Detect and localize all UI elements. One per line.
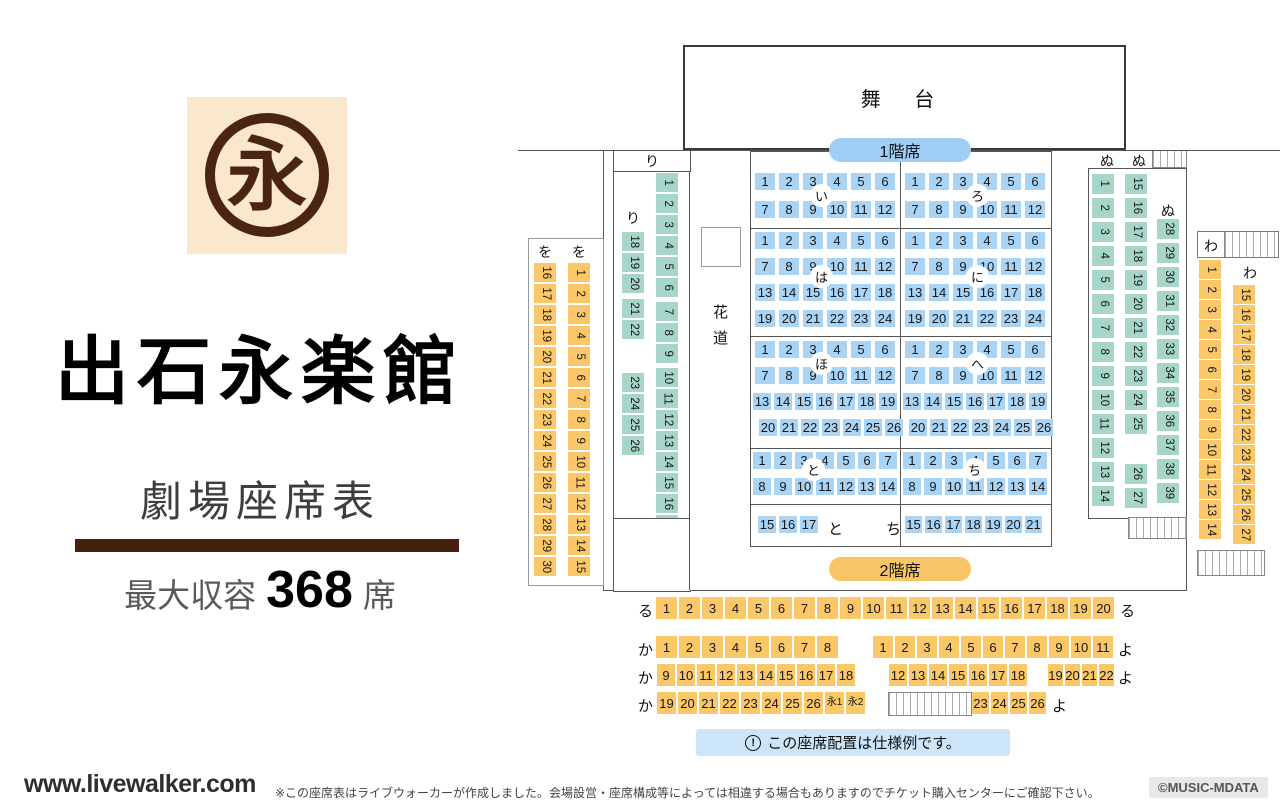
- seat: 14: [879, 478, 897, 495]
- row-label-yo: よ: [1052, 695, 1067, 716]
- seat: 20: [929, 310, 949, 327]
- seat: 36: [1157, 411, 1179, 431]
- seat: 11: [1001, 258, 1021, 275]
- seat: 19: [1125, 270, 1147, 290]
- seat: 15: [568, 557, 590, 576]
- seat: 7: [656, 302, 678, 321]
- seat: 24: [1025, 310, 1045, 327]
- seat: 21: [953, 310, 973, 327]
- floor2-pill: 2階席: [829, 557, 971, 581]
- seat-row-ka-1-8: 12345678: [656, 636, 838, 658]
- seat: 29: [1157, 243, 1179, 263]
- seat: 16: [534, 263, 556, 282]
- seat: 23: [851, 310, 871, 327]
- seat-group: 1011121314151617: [656, 368, 678, 534]
- seat: 20: [1093, 597, 1114, 619]
- seat: 9: [774, 478, 792, 495]
- seat: 10: [1071, 636, 1091, 658]
- seat: 3: [803, 232, 823, 249]
- seat: 16: [656, 494, 678, 513]
- seat-row: 192021222324: [751, 310, 899, 327]
- seat: 5: [748, 636, 769, 658]
- seat: 7: [905, 258, 925, 275]
- seat: 13: [909, 664, 927, 686]
- seat: 14: [924, 393, 942, 410]
- seat: 14: [1092, 486, 1114, 506]
- seat: 10: [1092, 390, 1114, 410]
- row-label-ka: か: [638, 695, 653, 716]
- seat: 6: [875, 232, 895, 249]
- seat: 1: [755, 173, 775, 190]
- seat: 15: [905, 516, 922, 533]
- seat: 24: [991, 692, 1008, 714]
- seat: 19: [879, 393, 897, 410]
- seat: 13: [1199, 500, 1221, 519]
- seat: 25: [783, 692, 802, 714]
- venue-logo: 永: [187, 97, 347, 254]
- seat: 1: [905, 341, 925, 358]
- seat: 5: [851, 232, 871, 249]
- seat: 4: [827, 232, 847, 249]
- seat: 23: [534, 410, 556, 429]
- seat: 10: [568, 452, 590, 471]
- seat: 18: [1233, 345, 1255, 364]
- seat: 12: [1025, 258, 1045, 275]
- seat: 1: [656, 173, 678, 192]
- seat: 18: [1125, 246, 1147, 266]
- block-label-ha: は: [810, 265, 833, 288]
- seat: 8: [1199, 400, 1221, 419]
- seat: 2: [679, 636, 700, 658]
- seat: 14: [1199, 520, 1221, 539]
- seat: 22: [534, 389, 556, 408]
- seat: 20: [678, 692, 697, 714]
- seat-row-yo-19-22: 19202122: [1048, 664, 1114, 686]
- seat: 2: [929, 341, 949, 358]
- seat: 14: [929, 284, 949, 301]
- seat: 11: [1199, 460, 1221, 479]
- seat-group: 2122: [622, 299, 644, 339]
- seat: 13: [753, 393, 771, 410]
- block-label-ho: ほ: [810, 352, 833, 375]
- seat: 7: [1005, 636, 1025, 658]
- seat: 2: [568, 284, 590, 303]
- seat: 6: [1025, 232, 1045, 249]
- seat: 7: [1029, 452, 1047, 469]
- seat: 27: [534, 494, 556, 513]
- seat-group: 789: [656, 302, 678, 363]
- seat: 12: [1199, 480, 1221, 499]
- exclamation-circle-icon: !: [745, 735, 761, 751]
- seat: 14: [1029, 478, 1047, 495]
- seat: 1: [568, 263, 590, 282]
- seat: 11: [1092, 414, 1114, 434]
- seat: 1: [905, 232, 925, 249]
- seat: 10: [863, 597, 884, 619]
- seat: 18: [837, 664, 855, 686]
- capacity-label: 最大収容: [124, 569, 256, 617]
- seat: 22: [1125, 342, 1147, 362]
- seat: 18: [875, 284, 895, 301]
- seat: 9: [840, 597, 861, 619]
- seat: 18: [534, 305, 556, 324]
- seat: 11: [886, 597, 907, 619]
- seat: 17: [817, 664, 835, 686]
- seat: 19: [534, 326, 556, 345]
- seat: 1: [1092, 174, 1114, 194]
- seat: 18: [1047, 597, 1068, 619]
- capacity-line: 最大収容 368 席: [0, 560, 520, 620]
- seat: 7: [755, 258, 775, 275]
- row-label-ri: り: [622, 208, 644, 228]
- seat: 10: [827, 201, 847, 218]
- seat: 12: [875, 258, 895, 275]
- seat: 8: [568, 410, 590, 429]
- seat: 1: [656, 636, 677, 658]
- note-text: この座席配置は仕様例です。: [767, 732, 961, 753]
- seat: 12: [1025, 201, 1045, 218]
- seat: 22: [801, 419, 819, 436]
- seat: 19: [1233, 365, 1255, 384]
- capacity-number: 368: [266, 560, 353, 620]
- seat: 10: [1199, 440, 1221, 459]
- seat: 17: [851, 284, 871, 301]
- seat: 16: [797, 664, 815, 686]
- seat: 22: [622, 320, 644, 339]
- seat: 19: [1070, 597, 1091, 619]
- seat: 17: [1024, 597, 1045, 619]
- seat: 15: [953, 284, 973, 301]
- seat: 5: [568, 347, 590, 366]
- seat: 11: [851, 258, 871, 275]
- seat: 16: [816, 393, 834, 410]
- seat: 15: [978, 597, 999, 619]
- seat: 24: [622, 394, 644, 413]
- seat-block-ri: り 181920212223242526 1234567891011121314…: [613, 170, 691, 519]
- seat: 15: [758, 516, 776, 533]
- seat: 25: [864, 419, 882, 436]
- block-label-i: い: [810, 184, 833, 207]
- seat-group: 2627: [1125, 464, 1147, 508]
- seat: 3: [656, 215, 678, 234]
- hanamichi-label: 花 道: [690, 300, 751, 352]
- seat: 9: [657, 664, 675, 686]
- stairs-hatch: [1197, 550, 1265, 576]
- seat: 9: [656, 344, 678, 363]
- seat: 27: [1233, 525, 1255, 544]
- seat-column-nu-15-27: 15161718192021222324252627: [1125, 174, 1147, 508]
- seat: 11: [1001, 201, 1021, 218]
- seat: 5: [851, 341, 871, 358]
- seat: 31: [1157, 291, 1179, 311]
- seat: 7: [568, 389, 590, 408]
- seat: 20: [622, 274, 644, 293]
- seat: 12: [1092, 438, 1114, 458]
- seat: 8: [903, 478, 921, 495]
- seat: 16: [969, 664, 987, 686]
- seat: 26: [804, 692, 823, 714]
- seat: 5: [837, 452, 855, 469]
- seat: 21: [1025, 516, 1042, 533]
- seat: 21: [1082, 664, 1097, 686]
- seat: 10: [677, 664, 695, 686]
- seat: 2: [895, 636, 915, 658]
- page-subtitle: 劇場座席表: [0, 468, 520, 529]
- seat: 17: [987, 393, 1005, 410]
- seat: 15: [1125, 174, 1147, 194]
- seat-column-nu-1-14: 1234567891011121314: [1092, 174, 1114, 506]
- row-label-wa: わ: [1204, 236, 1218, 256]
- seat-block-to: 1234567891011121314: [751, 452, 899, 495]
- floor2-label: 2階席: [880, 557, 921, 581]
- seat: 28: [1157, 219, 1179, 239]
- row-label-nu: ぬ: [1132, 151, 1146, 171]
- seat-row: 192021222324: [901, 310, 1049, 327]
- seat: 12: [1025, 367, 1045, 384]
- eirakukan-crest-icon: 永: [187, 97, 347, 254]
- hanamichi-corridor: 花 道: [689, 151, 751, 590]
- seat-row: 123456: [901, 232, 1049, 249]
- seat: 3: [945, 452, 963, 469]
- seat: 7: [755, 201, 775, 218]
- seat-group: 1516171819202122232425: [1125, 174, 1147, 434]
- seat: 7: [794, 636, 815, 658]
- seat: 15: [1233, 285, 1255, 304]
- seat: 14: [757, 664, 775, 686]
- seat: 3: [1199, 300, 1221, 319]
- seat-row-ru: 1234567891011121314151617181920: [656, 597, 1114, 619]
- seat: 4: [725, 597, 746, 619]
- seat-group: 123456: [656, 173, 678, 297]
- seat: 19: [1048, 664, 1063, 686]
- seat: 9: [1092, 366, 1114, 386]
- seat-row-to-15-17: 151617: [758, 516, 818, 533]
- seat: 16: [779, 516, 797, 533]
- row-label-ri-header: り: [613, 150, 691, 172]
- seat: 34: [1157, 363, 1179, 383]
- seat: 24: [534, 431, 556, 450]
- seat: 2: [779, 341, 799, 358]
- stairs-hatch: [1224, 232, 1278, 257]
- seat: 7: [905, 367, 925, 384]
- seat: 23: [1001, 310, 1021, 327]
- seat: 8: [779, 201, 799, 218]
- seat: 9: [924, 478, 942, 495]
- seat: 20: [909, 419, 927, 436]
- seat: 24: [993, 419, 1011, 436]
- seat: 18: [622, 232, 644, 251]
- seat: 23: [1125, 366, 1147, 386]
- seat-row: 891011121314: [751, 478, 899, 495]
- seat: 16: [827, 284, 847, 301]
- seat: 24: [762, 692, 781, 714]
- seat: 27: [1125, 488, 1147, 508]
- seat: 11: [1093, 636, 1113, 658]
- brown-divider: [75, 539, 459, 552]
- seat: 32: [1157, 315, 1179, 335]
- seat: 18: [1009, 664, 1027, 686]
- row-label-nu: ぬ: [1161, 201, 1175, 221]
- seat: 5: [1001, 232, 1021, 249]
- seat: 22: [720, 692, 739, 714]
- seat: 21: [699, 692, 718, 714]
- seat: 21: [780, 419, 798, 436]
- seat: 12: [837, 478, 855, 495]
- seat: 3: [568, 305, 590, 324]
- seat: 1: [755, 341, 775, 358]
- seat: 6: [1008, 452, 1026, 469]
- seat: 19: [622, 253, 644, 272]
- block-label-he: へ: [966, 352, 989, 375]
- seat: 20: [759, 419, 777, 436]
- seat: 12: [568, 494, 590, 513]
- seat: 13: [932, 597, 953, 619]
- seat: 4: [1199, 320, 1221, 339]
- seat: 21: [803, 310, 823, 327]
- seat-block-nu: ぬ 1234567891011121314 151617181920212223…: [1088, 168, 1187, 519]
- row-label-to: と: [828, 518, 843, 539]
- seat: 28: [534, 515, 556, 534]
- seat: 11: [656, 389, 678, 408]
- seat: 6: [1092, 294, 1114, 314]
- stage-label: 舞 台: [861, 83, 949, 112]
- seat: 2: [1199, 280, 1221, 299]
- seat: 8: [929, 258, 949, 275]
- seat: 18: [1025, 284, 1045, 301]
- seat: 20: [1125, 294, 1147, 314]
- seat: 15: [945, 393, 963, 410]
- stairs-hatch: [1152, 151, 1187, 168]
- seat: 10: [945, 478, 963, 495]
- seat-row-ka-19-26-ei: 1920212223242526永1永2: [657, 692, 865, 714]
- seat-row: 20212223242526: [763, 419, 899, 436]
- seat: 2: [779, 232, 799, 249]
- seat: 13: [568, 515, 590, 534]
- seat: 29: [534, 536, 556, 555]
- hanamichi-trap-square: [701, 227, 741, 267]
- seat: 25: [1233, 485, 1255, 504]
- seat: 12: [987, 478, 1005, 495]
- seat: 13: [903, 393, 921, 410]
- seat: 20: [1065, 664, 1080, 686]
- seat: 13: [1092, 462, 1114, 482]
- seat: 30: [534, 557, 556, 576]
- seat: 12: [889, 664, 907, 686]
- seat: 7: [879, 452, 897, 469]
- seat: 22: [977, 310, 997, 327]
- block-label-ni: に: [966, 265, 989, 288]
- seat: 17: [945, 516, 962, 533]
- seat: 5: [1092, 270, 1114, 290]
- seat: 15: [656, 473, 678, 492]
- seat: 13: [858, 478, 876, 495]
- seat: 13: [656, 431, 678, 450]
- seat: 11: [851, 201, 871, 218]
- seat: 4: [1092, 246, 1114, 266]
- seat: 12: [875, 201, 895, 218]
- row-label-ka: か: [638, 639, 653, 660]
- seat-column-wa-1-14: 1234567891011121314: [1199, 260, 1221, 539]
- seat: 15: [777, 664, 795, 686]
- seat: 15: [795, 393, 813, 410]
- seat: 37: [1157, 435, 1179, 455]
- seat: 8: [779, 258, 799, 275]
- stairs-hatch: [888, 692, 972, 716]
- row-label-yo: よ: [1118, 639, 1133, 660]
- seat: 5: [1001, 341, 1021, 358]
- seat: 2: [1092, 198, 1114, 218]
- seat: 12: [909, 597, 930, 619]
- seat: 8: [929, 201, 949, 218]
- seat: 35: [1157, 387, 1179, 407]
- hanamichi-char-2: 道: [690, 326, 751, 352]
- seat-column-nu-28-39: 282930313233343536373839: [1157, 219, 1179, 503]
- seat-row: 13141516171819: [901, 393, 1049, 410]
- seat: 10: [656, 368, 678, 387]
- seat: 23: [622, 373, 644, 392]
- seat: 12: [875, 367, 895, 384]
- seat: 13: [1008, 478, 1026, 495]
- seat: 21: [1233, 405, 1255, 424]
- seat: 21: [622, 299, 644, 318]
- seat: 2: [656, 194, 678, 213]
- block-label-chi: ち: [963, 458, 986, 481]
- section-divider: [751, 336, 1051, 337]
- venue-title: 出石永楽館: [0, 312, 520, 419]
- seat: 17: [1001, 284, 1021, 301]
- seat: 24: [1125, 390, 1147, 410]
- seat: 14: [656, 452, 678, 471]
- seat: 26: [534, 473, 556, 492]
- seat: 30: [1157, 267, 1179, 287]
- seat: 2: [929, 232, 949, 249]
- seat: 24: [875, 310, 895, 327]
- seat: 16: [1001, 597, 1022, 619]
- seat: 8: [817, 597, 838, 619]
- seat: 7: [755, 367, 775, 384]
- seat: 19: [905, 310, 925, 327]
- seat: 25: [1125, 414, 1147, 434]
- seat: 5: [748, 597, 769, 619]
- seat: 2: [679, 597, 700, 619]
- seat: 5: [851, 173, 871, 190]
- seat: 11: [1001, 367, 1021, 384]
- seat: 23: [972, 419, 990, 436]
- seat: 5: [656, 257, 678, 276]
- seat: 4: [568, 326, 590, 345]
- seat: 4: [725, 636, 746, 658]
- seat: 17: [534, 284, 556, 303]
- seat: 8: [929, 367, 949, 384]
- seat: 15: [949, 664, 967, 686]
- seat: 21: [1125, 318, 1147, 338]
- floor1-pill: 1階席: [829, 138, 971, 162]
- seat: 17: [1233, 325, 1255, 344]
- seat: 6: [1025, 173, 1045, 190]
- seat: 25: [622, 415, 644, 434]
- seat: 11: [816, 478, 834, 495]
- seat: 11: [851, 367, 871, 384]
- seat: 6: [656, 278, 678, 297]
- seat: 13: [755, 284, 775, 301]
- seat: 6: [875, 341, 895, 358]
- seat: 21: [534, 368, 556, 387]
- section-divider: [751, 448, 1051, 449]
- seat: 25: [1014, 419, 1032, 436]
- seat: 12: [656, 410, 678, 429]
- seat-row-yo-12-18: 12131415161718: [889, 664, 1027, 686]
- seat: 5: [1001, 173, 1021, 190]
